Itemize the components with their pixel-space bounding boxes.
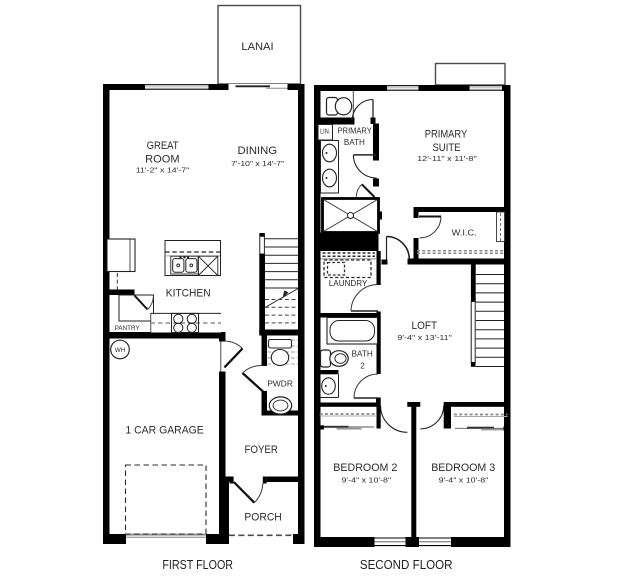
svg-text:BATH: BATH [352, 350, 373, 359]
svg-text:7'-10" x 14'-7": 7'-10" x 14'-7" [231, 159, 285, 168]
svg-text:WH: WH [115, 347, 126, 354]
svg-text:ROOM: ROOM [145, 154, 179, 166]
svg-text:PRIMARY: PRIMARY [425, 129, 468, 141]
svg-text:SECOND FLOOR: SECOND FLOOR [360, 557, 453, 572]
svg-text:BATH: BATH [344, 138, 365, 147]
svg-text:PRIMARY: PRIMARY [338, 127, 373, 136]
svg-text:11'-2" x 14'-7": 11'-2" x 14'-7" [136, 165, 190, 174]
svg-text:SUITE: SUITE [432, 142, 460, 154]
svg-text:LAUNDRY: LAUNDRY [329, 279, 368, 288]
svg-text:12'-11" x 11'-8": 12'-11" x 11'-8" [417, 154, 477, 163]
svg-text:DINING: DINING [238, 145, 278, 157]
svg-text:9'-4" x 10'-8": 9'-4" x 10'-8" [342, 475, 392, 484]
svg-text:BEDROOM 3: BEDROOM 3 [431, 462, 495, 474]
svg-text:PWDR: PWDR [267, 379, 293, 388]
svg-text:W.I.C.: W.I.C. [452, 229, 477, 238]
svg-text:9'-4" x 10'-8": 9'-4" x 10'-8" [439, 475, 489, 484]
svg-text:1 CAR GARAGE: 1 CAR GARAGE [125, 425, 203, 437]
svg-text:FOYER: FOYER [244, 444, 278, 456]
svg-text:9'-4" x 13'-11": 9'-4" x 13'-11" [397, 333, 452, 342]
svg-text:GREAT: GREAT [147, 140, 179, 152]
svg-text:FIRST FLOOR: FIRST FLOOR [162, 557, 233, 572]
svg-text:KITCHEN: KITCHEN [166, 288, 211, 300]
svg-text:PANTRY: PANTRY [115, 325, 141, 332]
svg-text:LANAI: LANAI [241, 41, 273, 53]
svg-text:BEDROOM 2: BEDROOM 2 [333, 462, 397, 474]
svg-text:2: 2 [360, 361, 364, 370]
svg-text:LOFT: LOFT [412, 320, 438, 332]
svg-text:LIN.: LIN. [320, 129, 330, 136]
svg-text:PORCH: PORCH [244, 512, 281, 524]
